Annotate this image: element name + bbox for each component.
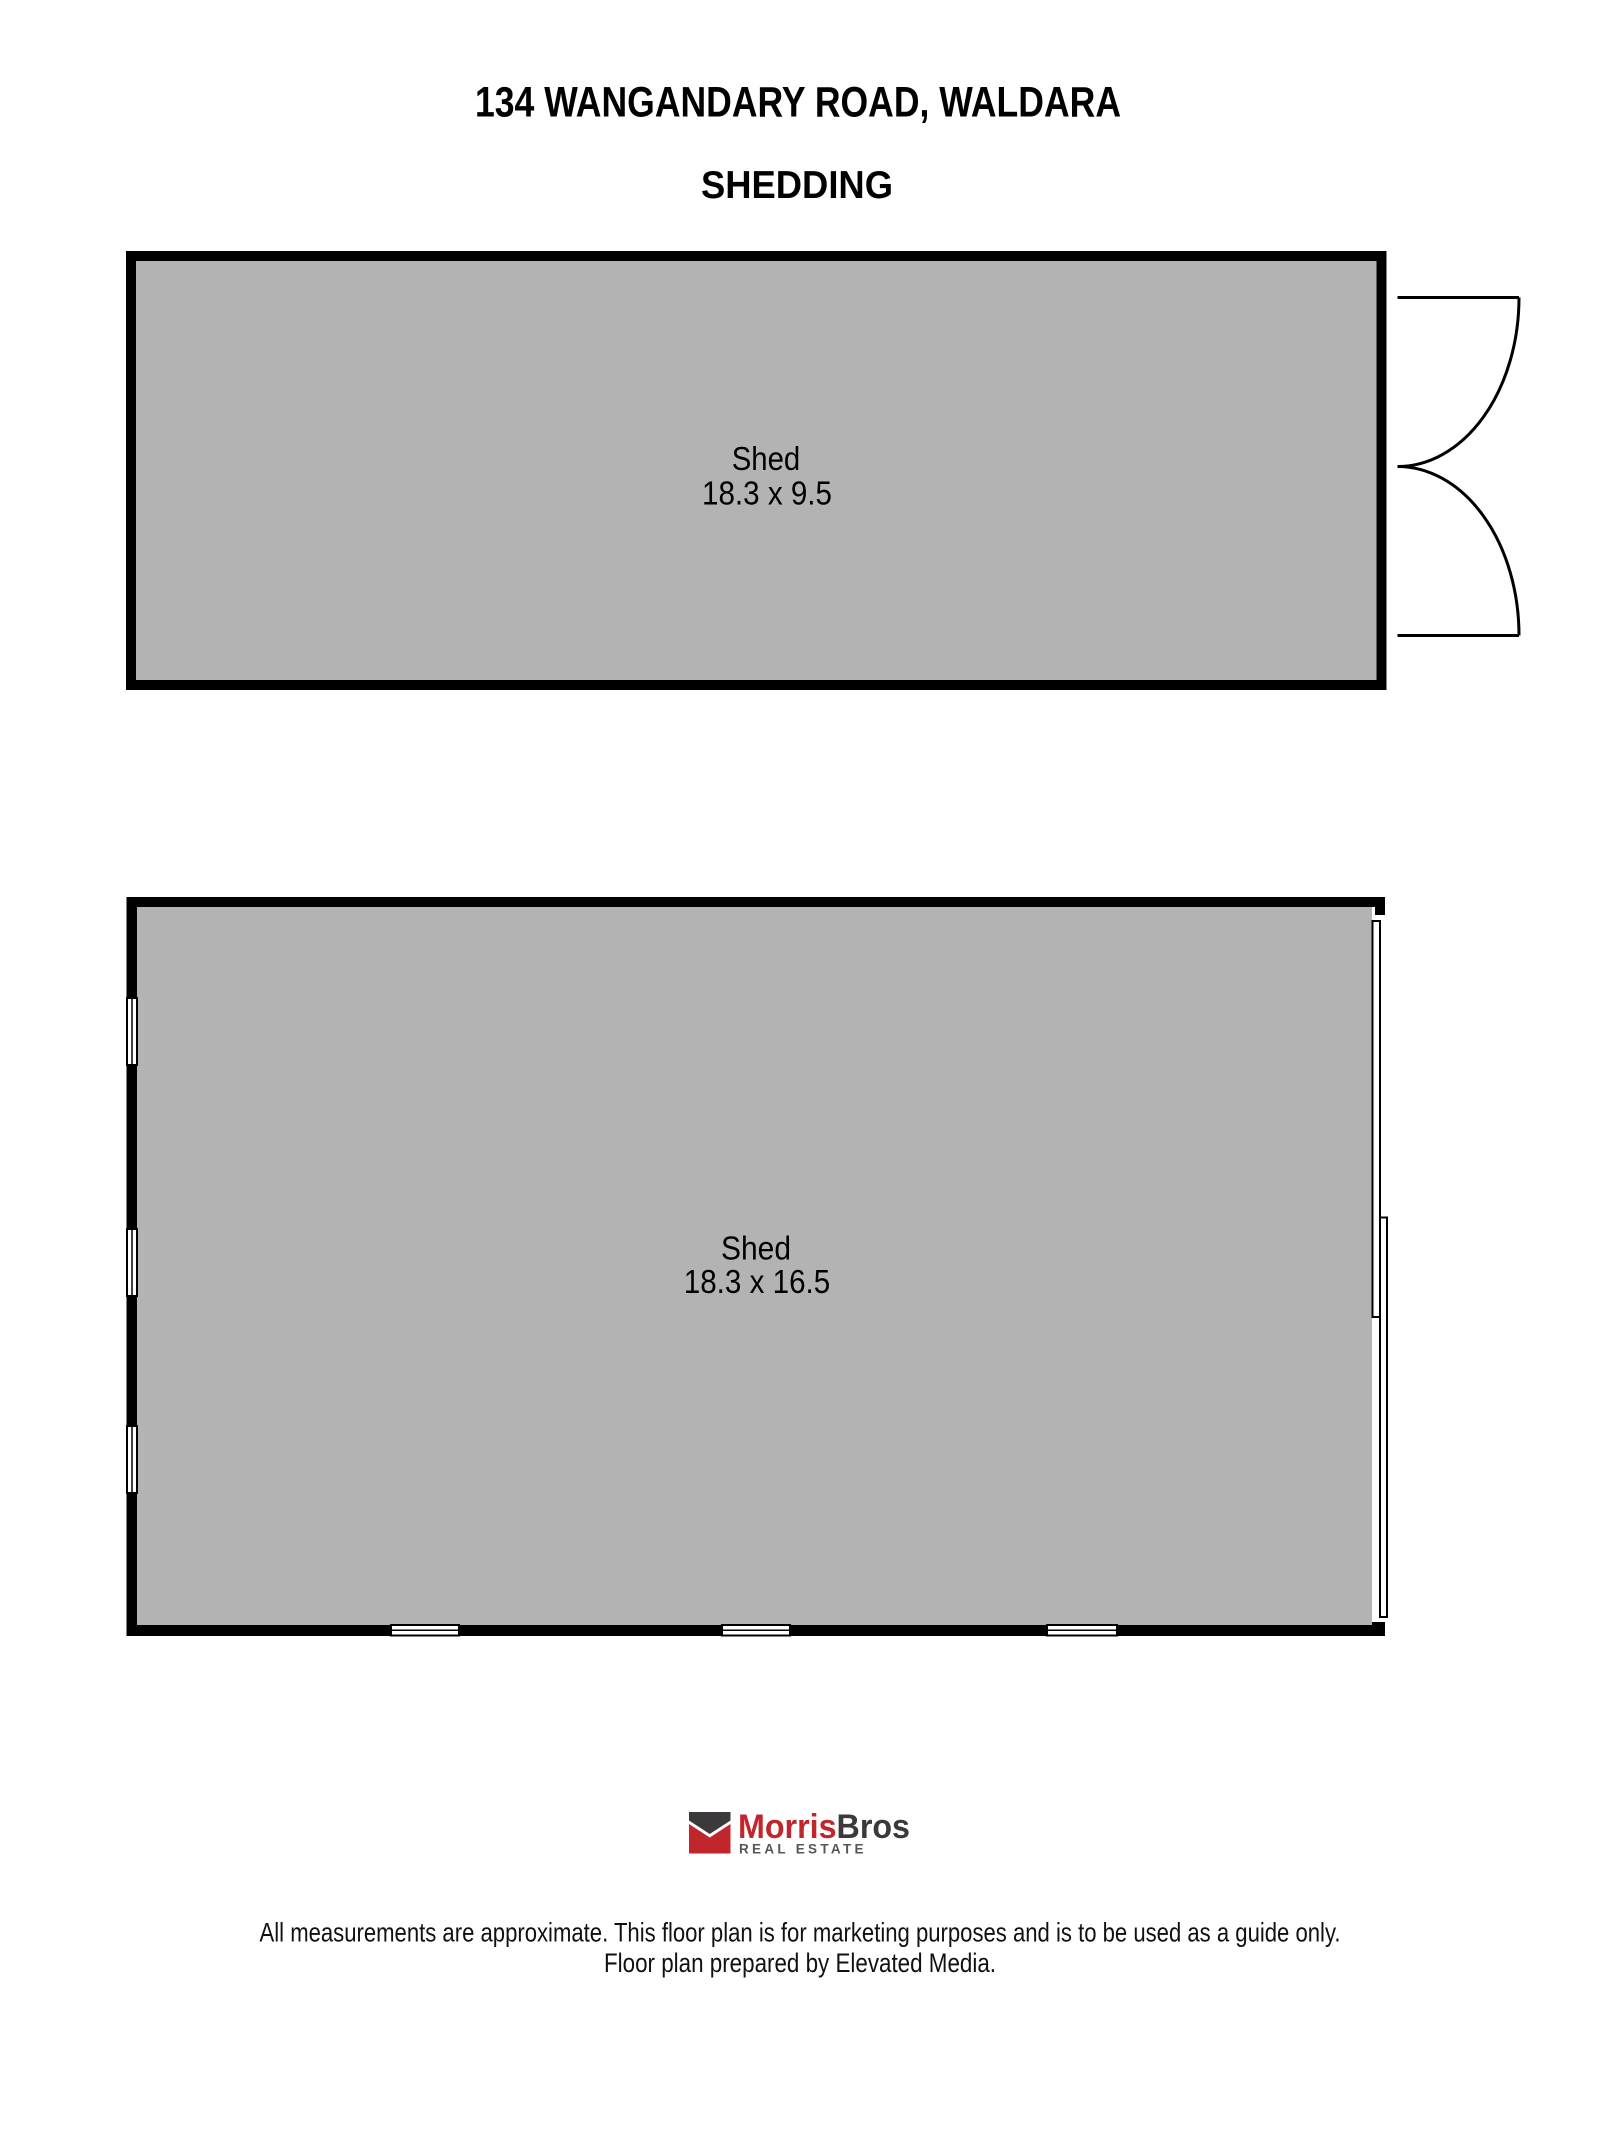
svg-text:134 WANGANDARY ROAD, WALDARA: 134 WANGANDARY ROAD, WALDARA: [475, 79, 1121, 127]
svg-text:18.3 x 9.5: 18.3 x 9.5: [702, 476, 832, 513]
svg-text:SHEDDING: SHEDDING: [701, 164, 893, 207]
svg-text:Floor plan prepared by Elevate: Floor plan prepared by Elevated Media.: [604, 1948, 996, 1978]
svg-text:18.3 x 16.5: 18.3 x 16.5: [684, 1264, 831, 1301]
svg-text:All measurements are approxima: All measurements are approximate. This f…: [260, 1918, 1341, 1948]
svg-text:Shed: Shed: [721, 1231, 791, 1268]
svg-text:REAL ESTATE: REAL ESTATE: [739, 1842, 864, 1857]
svg-text:MorrisBros: MorrisBros: [738, 1808, 910, 1846]
svg-text:Shed: Shed: [732, 441, 801, 478]
